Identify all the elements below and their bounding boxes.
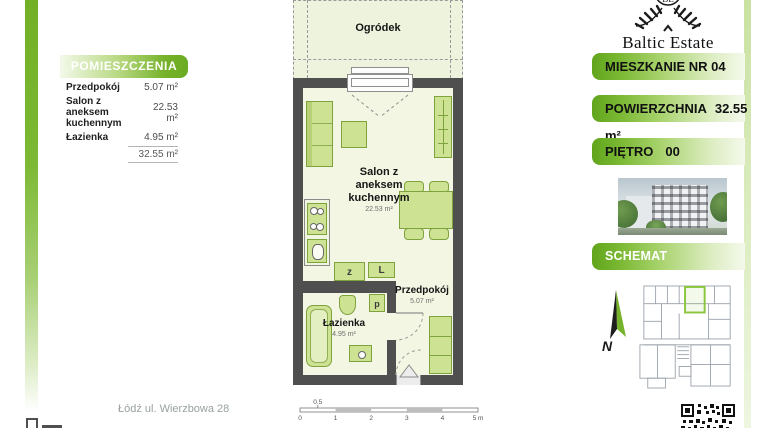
bath-area: 4.95 m² (312, 331, 376, 338)
hall-name: Przedpokój (391, 284, 453, 297)
north-label: N (602, 338, 613, 354)
ground (618, 228, 727, 235)
interior-wall (387, 340, 396, 375)
stove-burner (317, 208, 324, 215)
scale-bar: 0 0.5 1 2 3 4 5 m (296, 399, 486, 423)
coffee-table (341, 121, 367, 148)
garden-boundary-line (293, 59, 463, 60)
wardrobe-hanger (438, 143, 448, 144)
scale-tick-label: 0 (298, 415, 302, 422)
legend-title-bar: POMIESZCZENIA (60, 55, 188, 78)
room-area-value: 4.95 m² (144, 132, 178, 143)
legend-row: Łazienka 4.95 m² (66, 132, 178, 143)
toilet-bowl (358, 351, 366, 359)
area-bar: POWIERZCHNIA32.55 m² (592, 95, 745, 122)
interior-wall (303, 281, 396, 293)
address-text: Łódź ul. Wierzbowa 28 (118, 403, 229, 415)
hall-area: 5.07 m² (391, 298, 453, 305)
sofa-cushion-line (312, 145, 332, 146)
building-photo (618, 178, 727, 235)
hall-label-block: Przedpokój 5.07 m² (391, 284, 453, 305)
north-arrow-icon: N (600, 287, 636, 355)
room-area-value: 22.53 m² (144, 102, 178, 124)
bath-name: Łazienka (312, 317, 376, 330)
floor-value: 00 (665, 144, 679, 159)
sofa-cushion-line (312, 123, 332, 124)
scale-bar-segment (336, 408, 372, 412)
unit-highlight (685, 287, 705, 313)
wardrobe-shelf-line (430, 336, 451, 337)
partial-logo-icon (26, 418, 38, 428)
salon-area: 22.53 m² (336, 206, 422, 213)
legend-table: Przedpokój 5.07 m² Salon z aneksem kuche… (66, 82, 178, 165)
fridge: L (368, 262, 395, 278)
wardrobe-hanger (438, 115, 448, 116)
sofa (306, 101, 333, 167)
balcony-door-frame (351, 78, 409, 87)
scale-bar-segment (407, 408, 443, 412)
svg-text:BE: BE (662, 0, 674, 4)
hall-wardrobe (429, 316, 452, 374)
salon-name: Salon z aneksem kuchennym (336, 166, 422, 205)
tree (710, 192, 727, 222)
balcony-sill (351, 67, 409, 74)
room-label: Przedpokój (66, 82, 144, 93)
garden-boundary-line (307, 0, 308, 78)
kitchen-sink (307, 239, 327, 263)
bath-label-block: Łazienka 4.95 m² (312, 317, 376, 338)
washing-machine: p (369, 294, 385, 312)
room-label: Łazienka (66, 132, 144, 143)
salon-label-block: Salon z aneksem kuchennym 22.53 m² (336, 166, 422, 213)
room-area-value: 5.07 m² (144, 82, 178, 93)
washbasin (339, 295, 356, 315)
wardrobe (434, 96, 452, 158)
stove (307, 203, 327, 235)
floor-schematic (636, 283, 738, 391)
garden-boundary-line (450, 0, 451, 78)
total-area-value: 32.55 m² (66, 149, 178, 160)
wardrobe-hanger (438, 129, 448, 130)
entry-door-opening (396, 375, 421, 385)
scale-tick-label: 2 (369, 415, 373, 422)
floor-label: PIĘTRO (605, 144, 653, 159)
stove-burner (316, 223, 324, 231)
legend-divider (128, 162, 178, 163)
scale-tick-label: 5 m (473, 415, 484, 422)
scale-tick-label: 1 (334, 415, 338, 422)
scale-bar-outline (300, 408, 478, 412)
unit-number-bar: MIESZKANIE NR 04 (592, 53, 745, 80)
qr-code (681, 404, 735, 428)
toilet (349, 345, 372, 362)
scale-tick-label: 3 (405, 415, 409, 422)
wardrobe-shelf-line (430, 355, 451, 356)
left-accent-bar (25, 0, 38, 412)
room-label: Salon z aneksem kuchennym (66, 96, 144, 129)
schematic-title-bar: SCHEMAT KONDYGNACJI (592, 243, 745, 270)
brand-name: Baltic Estate (592, 33, 744, 53)
scale-tick-label: 4 (441, 415, 445, 422)
floor-bar: PIĘTRO00 (592, 138, 745, 165)
legend-row: Salon z aneksem kuchennym 22.53 m² (66, 96, 178, 129)
dishwasher: z (334, 262, 365, 281)
dining-chair (404, 228, 424, 240)
area-label: POWIERZCHNIA (605, 101, 707, 116)
legend-divider (128, 146, 178, 147)
wardrobe-rod (443, 100, 444, 154)
legend-row: Przedpokój 5.07 m² (66, 82, 178, 93)
garden-label: Ogródek (293, 22, 463, 35)
dining-chair (429, 228, 449, 240)
sink-basin (312, 244, 324, 260)
right-accent-bar (744, 0, 751, 428)
sofa-back (307, 102, 312, 166)
laurel-wreath-icon: BE (628, 0, 708, 32)
brochure-page: POMIESZCZENIA Przedpokój 5.07 m² Salon z… (0, 0, 760, 428)
scale-tick-label: 0.5 (313, 399, 322, 406)
